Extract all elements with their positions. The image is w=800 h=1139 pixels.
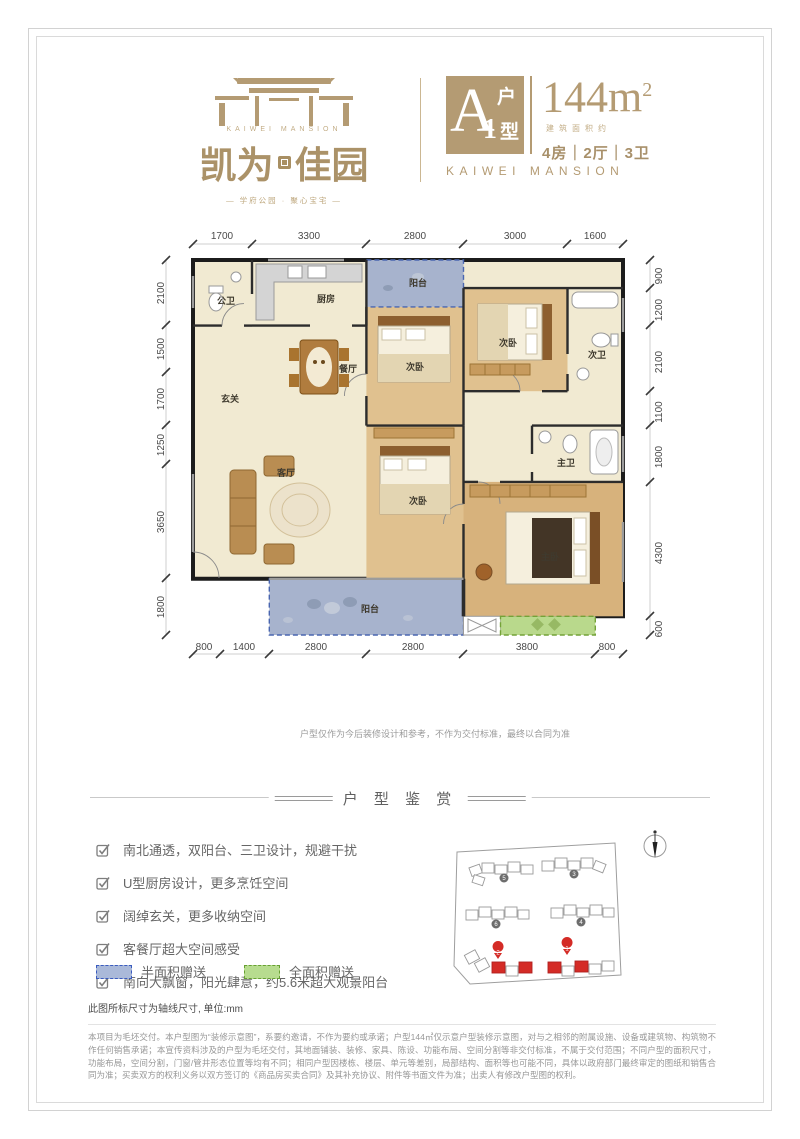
floorplan: 1700 3300 2800 3000 1600 2100 1500 1700 … <box>118 222 680 677</box>
logo-tagline: — 学府公园 · 聚心宝宅 — <box>168 195 400 206</box>
feature-item: 南北通透，双阳台、三卫设计，规避干扰 <box>96 840 388 859</box>
checkbox-icon <box>96 909 111 923</box>
seal-icon <box>278 156 291 169</box>
svg-text:3800: 3800 <box>516 642 539 653</box>
feature-text: U型厨房设计，更多烹饪空间 <box>123 873 288 892</box>
svg-text:3650: 3650 <box>156 510 167 533</box>
feature-text: 客餐厅超大空间感受 <box>123 939 240 958</box>
logo-cn-text: 凯为佳园 <box>168 135 400 189</box>
svg-text:2100: 2100 <box>654 350 665 373</box>
svg-text:3000: 3000 <box>504 231 527 242</box>
svg-text:1800: 1800 <box>654 445 665 468</box>
site-plan-drawing: 5 3 6 4 2 1 <box>448 822 720 1000</box>
badge-number: 1 <box>483 114 497 146</box>
svg-text:1500: 1500 <box>156 337 167 360</box>
badge-hu: 户 <box>497 82 516 109</box>
legend-label: 半面积赠送 <box>141 962 206 981</box>
svg-text:1700: 1700 <box>211 231 234 242</box>
svg-text:900: 900 <box>654 267 665 284</box>
svg-text:1400: 1400 <box>233 642 256 653</box>
header-divider <box>420 78 421 182</box>
svg-text:1600: 1600 <box>584 231 607 242</box>
legend-full-gift: 全面积赠送 <box>244 962 354 981</box>
plan-disclaimer: 户型仅作为今后装修设计和参考，不作为交付标准，最终以合同为准 <box>300 727 570 740</box>
svg-text:次卧: 次卧 <box>409 495 427 506</box>
legend-label: 全面积赠送 <box>289 962 354 981</box>
svg-text:玄关: 玄关 <box>221 393 239 404</box>
gate-icon <box>209 72 359 128</box>
svg-text:800: 800 <box>599 642 616 653</box>
svg-text:4300: 4300 <box>654 541 665 564</box>
section-title: 户 型 鉴 赏 <box>343 788 458 809</box>
section-header: 户 型 鉴 赏 <box>90 788 710 808</box>
svg-text:次卧: 次卧 <box>499 337 517 348</box>
svg-text:餐厅: 餐厅 <box>338 363 357 374</box>
feature-text: 南北通透，双阳台、三卫设计，规避干扰 <box>123 840 357 859</box>
header-ornament-right <box>467 796 525 801</box>
floorplan-drawing: 1700 3300 2800 3000 1600 2100 1500 1700 … <box>118 222 680 672</box>
half-gift-swatch-icon <box>96 965 132 979</box>
svg-text:主卫: 主卫 <box>557 457 575 468</box>
brand-en-text: KAIWEI MANSION <box>446 164 682 178</box>
svg-text:1100: 1100 <box>654 401 665 423</box>
area-value: 144m2 <box>542 66 682 122</box>
unit-type-badge: A 户 1 型 <box>446 76 524 154</box>
rooms-spec: 4房｜2厅｜3卫 <box>542 142 682 163</box>
svg-text:2100: 2100 <box>156 281 167 304</box>
svg-text:600: 600 <box>654 620 665 637</box>
compass-icon <box>644 830 666 858</box>
feature-text: 阔绰玄关，更多收纳空间 <box>123 906 266 925</box>
full-gift-swatch-icon <box>244 965 280 979</box>
logo-en-text: KAIWEI MANSION <box>168 126 400 133</box>
svg-text:1800: 1800 <box>156 595 167 618</box>
feature-item: 客餐厅超大空间感受 <box>96 939 388 958</box>
svg-text:3300: 3300 <box>298 231 321 242</box>
legend-half-gift: 半面积赠送 <box>96 962 206 981</box>
svg-text:1200: 1200 <box>654 298 665 321</box>
checkbox-icon <box>96 843 111 857</box>
svg-text:次卧: 次卧 <box>406 361 424 372</box>
area-note: 建筑面积约 <box>542 123 682 134</box>
brochure-page: KAIWEI MANSION 凯为佳园 — 学府公园 · 聚心宝宅 — A 户 … <box>0 0 800 1139</box>
site-plan: 5 3 6 4 2 1 <box>448 822 720 1005</box>
bay-window-gift-area <box>501 616 596 635</box>
area-block: 144m2 建筑面积约 4房｜2厅｜3卫 <box>542 66 682 163</box>
svg-text:客厅: 客厅 <box>276 467 295 478</box>
svg-text:1700: 1700 <box>156 387 167 410</box>
logo-cn-right: 佳园 <box>295 135 369 189</box>
svg-text:公卫: 公卫 <box>217 296 235 306</box>
svg-text:次卫: 次卫 <box>588 349 606 360</box>
logo-cn-left: 凯为 <box>200 135 274 189</box>
header-ornament-left <box>275 796 333 801</box>
checkbox-icon <box>96 876 111 890</box>
svg-text:800: 800 <box>196 642 213 653</box>
svg-text:阳台: 阳台 <box>409 277 427 288</box>
svg-text:厨房: 厨房 <box>317 293 335 304</box>
brand-logo: KAIWEI MANSION 凯为佳园 — 学府公园 · 聚心宝宅 — <box>168 72 400 206</box>
checkbox-icon <box>96 942 111 956</box>
svg-text:2800: 2800 <box>402 642 425 653</box>
svg-text:2800: 2800 <box>404 231 427 242</box>
gift-legend: 半面积赠送 全面积赠送 <box>96 962 354 981</box>
svg-text:阳台: 阳台 <box>361 603 379 614</box>
badge-rule <box>530 76 532 154</box>
badge-xing: 型 <box>500 117 519 144</box>
svg-text:1250: 1250 <box>156 433 167 456</box>
feature-item: U型厨房设计，更多烹饪空间 <box>96 873 388 892</box>
svg-text:主卧: 主卧 <box>541 551 559 562</box>
svg-text:2800: 2800 <box>305 642 328 653</box>
legal-disclaimer: 本项目为毛坯交付。本户型图为“装修示意图”，系要约邀请，不作为要约或承诺；户型1… <box>88 1024 716 1082</box>
feature-item: 阔绰玄关，更多收纳空间 <box>96 906 388 925</box>
axis-dimension-note: 此图所标尺寸为轴线尺寸, 单位:mm <box>88 1000 243 1015</box>
